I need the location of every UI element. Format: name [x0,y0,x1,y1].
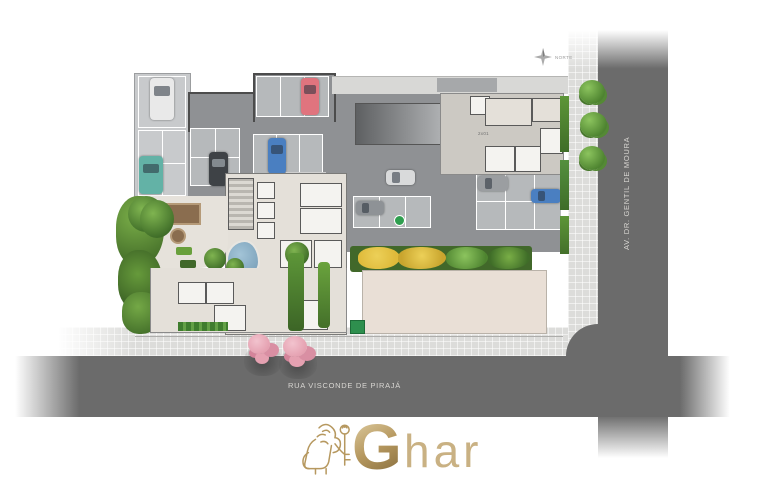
bottom-room [206,282,234,304]
car-windshield [362,203,369,213]
garage-entry-wall [437,78,497,92]
planter [176,247,192,255]
car-gray [478,176,508,191]
car-windshield [485,178,493,189]
pink-blossoms [248,334,270,354]
site-plan-canvas: 2x01 [0,0,768,488]
brand-logo: G har [296,418,486,482]
car-white [150,78,174,120]
utility-green [350,320,365,334]
car-windshield [143,164,160,173]
car-red [301,78,319,115]
car-blue [268,138,286,174]
edge-hedge [560,96,569,152]
car-windshield [154,86,171,96]
garden-column [318,262,330,328]
car-windshield [392,172,400,183]
lion-key-logo-icon [296,419,358,481]
car-windshield [271,145,284,154]
plaza [362,270,547,334]
right-wing-room [485,98,532,126]
round-table [170,228,186,244]
right-wing-room [515,146,541,172]
hedge-strip [178,322,228,331]
curb-line [135,336,563,337]
flowering-tree [274,334,322,382]
street-tree-icon [579,146,605,170]
car-windshield [538,191,546,201]
edge-hedge [560,216,569,254]
stall-number-label: 2x01 [478,131,489,136]
street-tree-icon [580,112,607,137]
north-arrow-label: NORTE [555,55,573,60]
elevator [257,222,275,239]
pink-blossoms [283,336,307,357]
edge-hedge [560,160,569,210]
street-label-vertical: AV. DR. GENTIL DE MOURA [622,130,631,250]
car-windshield [212,159,225,167]
bottom-room [178,282,206,304]
street-label-horizontal: RUA VISCONDE DE PIRAJÁ [288,381,401,390]
planter [180,260,196,268]
courtyard-tree-icon [204,248,226,270]
core-room [300,208,342,234]
garden-tree-icon [140,200,174,238]
car-silver [386,170,415,185]
elevator [257,202,275,219]
car-teal [139,156,163,194]
garage-ramp [355,103,442,145]
core-room [300,183,342,207]
garden-column [288,253,304,331]
logo-text: har [404,422,482,480]
ev-charging-icon [394,215,405,226]
sidewalk-right [568,30,598,356]
car-blue [531,189,561,203]
compass-icon [534,48,552,66]
stair [228,178,254,230]
car-gray [356,201,384,215]
logo-initial: G [352,418,402,476]
street-tree-icon [579,80,605,104]
right-wing-room [532,98,562,122]
right-wing-room [485,146,515,172]
north-arrow: NORTE [534,48,574,68]
car-windshield [304,85,317,94]
elevator [257,182,275,199]
garage-west-wall [188,92,190,132]
